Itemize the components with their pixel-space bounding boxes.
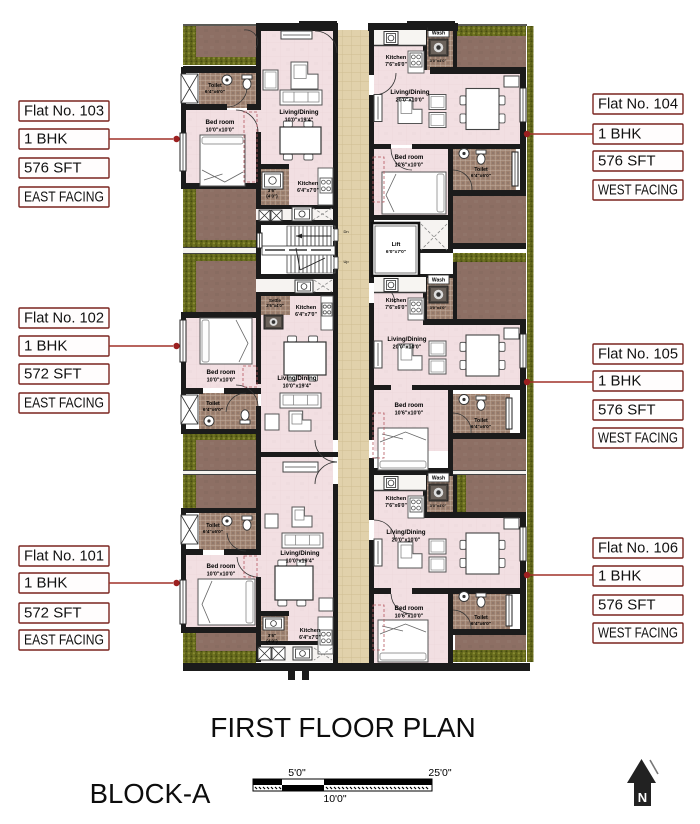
svg-text:Wash: Wash — [432, 31, 445, 37]
svg-text:Living/Dining: Living/Dining — [387, 336, 426, 343]
svg-text:1 BHK: 1 BHK — [598, 568, 641, 585]
svg-text:Living/Dining: Living/Dining — [386, 529, 425, 536]
svg-text:7'6"x6'0": 7'6"x6'0" — [385, 62, 407, 68]
svg-text:Bed room: Bed room — [395, 402, 424, 409]
svg-text:Living/Dining: Living/Dining — [390, 89, 429, 96]
svg-text:Kitchen: Kitchen — [386, 496, 407, 502]
svg-text:3'6"x4'0": 3'6"x4'0" — [266, 303, 284, 308]
svg-text:(4'0"): (4'0") — [266, 639, 278, 644]
svg-text:BLOCK-A: BLOCK-A — [90, 778, 211, 809]
svg-text:Bed room: Bed room — [207, 369, 236, 376]
svg-text:EAST FACING: EAST FACING — [24, 395, 104, 412]
svg-text:Toilet: Toilet — [474, 418, 488, 424]
svg-text:3'0"x4'0": 3'0"x4'0" — [430, 305, 447, 310]
svg-text:6'0"x7'0": 6'0"x7'0" — [386, 249, 406, 255]
svg-text:Bed room: Bed room — [207, 563, 236, 570]
svg-text:Wash: Wash — [432, 476, 445, 482]
svg-text:Kitchen: Kitchen — [300, 628, 321, 634]
svg-text:576 SFT: 576 SFT — [24, 160, 82, 177]
svg-text:Flat No. 104: Flat No. 104 — [598, 96, 678, 113]
svg-text:Living/Dining: Living/Dining — [280, 550, 319, 557]
svg-text:WEST FACING: WEST FACING — [598, 182, 678, 199]
svg-text:Living/Dining: Living/Dining — [277, 375, 316, 382]
svg-text:WEST FACING: WEST FACING — [598, 625, 678, 642]
svg-text:Dn: Dn — [344, 229, 349, 234]
svg-text:Lift: Lift — [392, 242, 401, 248]
svg-text:Flat No. 102: Flat No. 102 — [24, 310, 104, 327]
svg-text:10'0"x10'0": 10'0"x10'0" — [207, 378, 236, 384]
svg-text:10'0"x19'4": 10'0"x19'4" — [285, 118, 314, 124]
svg-text:Up: Up — [344, 259, 350, 264]
svg-text:10'6"x10'0": 10'6"x10'0" — [395, 163, 424, 169]
svg-text:576 SFT: 576 SFT — [598, 402, 656, 419]
svg-text:Bed room: Bed room — [395, 154, 424, 161]
svg-text:Kitchen: Kitchen — [296, 305, 317, 311]
svg-text:6'4"x6'0": 6'4"x6'0" — [471, 424, 491, 430]
svg-text:572 SFT: 572 SFT — [24, 366, 82, 383]
svg-text:10'0"x19'4": 10'0"x19'4" — [286, 559, 315, 565]
svg-text:10'0"x10'0": 10'0"x10'0" — [206, 128, 235, 134]
svg-text:20'0"x10'0": 20'0"x10'0" — [396, 98, 425, 104]
svg-text:10'0": 10'0" — [323, 793, 347, 805]
svg-text:6'4"x7'0": 6'4"x7'0" — [295, 312, 317, 318]
svg-text:576 SFT: 576 SFT — [598, 597, 656, 614]
svg-text:Bed room: Bed room — [395, 605, 424, 612]
svg-text:Flat No. 103: Flat No. 103 — [24, 103, 104, 120]
svg-text:Living/Dining: Living/Dining — [279, 109, 318, 116]
svg-text:10'6"x10'0": 10'6"x10'0" — [395, 411, 424, 417]
svg-text:3'6": 3'6" — [268, 188, 276, 193]
svg-text:Kitchen: Kitchen — [298, 181, 319, 187]
svg-text:Toilet: Toilet — [206, 523, 220, 529]
svg-text:Kitchen: Kitchen — [386, 55, 407, 61]
svg-text:3'0"x4'0": 3'0"x4'0" — [430, 58, 447, 63]
svg-text:Toilet: Toilet — [206, 401, 220, 407]
svg-text:6'4"x6'0": 6'4"x6'0" — [203, 407, 223, 413]
svg-text:(4'0"): (4'0") — [266, 194, 278, 199]
svg-text:1 BHK: 1 BHK — [24, 131, 67, 148]
svg-text:Wash: Wash — [432, 278, 445, 284]
svg-text:Bed room: Bed room — [206, 119, 235, 126]
svg-text:3'6": 3'6" — [268, 633, 276, 638]
svg-text:Flat No. 106: Flat No. 106 — [598, 540, 678, 557]
svg-text:6'4"x6'0": 6'4"x6'0" — [471, 621, 491, 627]
svg-text:1 BHK: 1 BHK — [24, 338, 67, 355]
svg-text:Toilet: Toilet — [474, 615, 488, 621]
svg-text:7'6"x6'0": 7'6"x6'0" — [385, 305, 407, 311]
svg-text:1 BHK: 1 BHK — [24, 575, 67, 592]
svg-text:N: N — [638, 790, 647, 805]
svg-text:FIRST FLOOR PLAN: FIRST FLOOR PLAN — [210, 712, 476, 743]
svg-text:Flat No. 101: Flat No. 101 — [24, 548, 104, 565]
svg-text:Flat No. 105: Flat No. 105 — [598, 346, 678, 363]
svg-text:1 BHK: 1 BHK — [598, 373, 641, 390]
svg-text:10'0"x10'0": 10'0"x10'0" — [207, 572, 236, 578]
svg-text:EAST FACING: EAST FACING — [24, 632, 104, 649]
svg-text:Toilet: Toilet — [208, 83, 222, 89]
svg-text:3'0"x4'0": 3'0"x4'0" — [430, 503, 447, 508]
svg-text:10'0"x19'4": 10'0"x19'4" — [283, 384, 312, 390]
svg-text:5'0": 5'0" — [288, 767, 306, 779]
svg-text:20'0"x10'0": 20'0"x10'0" — [393, 345, 422, 351]
svg-text:6'4"x6'0": 6'4"x6'0" — [205, 89, 225, 95]
svg-text:1 BHK: 1 BHK — [598, 126, 641, 143]
svg-text:25'0": 25'0" — [428, 767, 452, 779]
svg-text:576 SFT: 576 SFT — [598, 153, 656, 170]
svg-text:6'4"x7'0": 6'4"x7'0" — [299, 635, 321, 641]
svg-text:EAST FACING: EAST FACING — [24, 189, 104, 206]
svg-text:6'4"x7'0": 6'4"x7'0" — [297, 188, 319, 194]
svg-text:20'0"x10'0": 20'0"x10'0" — [392, 538, 421, 544]
svg-text:WEST FACING: WEST FACING — [598, 430, 678, 447]
svg-text:6'4"x6'0": 6'4"x6'0" — [203, 529, 223, 535]
svg-text:6'4"x6'0": 6'4"x6'0" — [471, 173, 491, 179]
svg-text:Toilet: Toilet — [474, 167, 488, 173]
svg-text:572 SFT: 572 SFT — [24, 605, 82, 622]
svg-text:Kitchen: Kitchen — [386, 298, 407, 304]
svg-text:7'6"x6'0": 7'6"x6'0" — [385, 503, 407, 509]
svg-text:10'6"x10'0": 10'6"x10'0" — [395, 614, 424, 620]
